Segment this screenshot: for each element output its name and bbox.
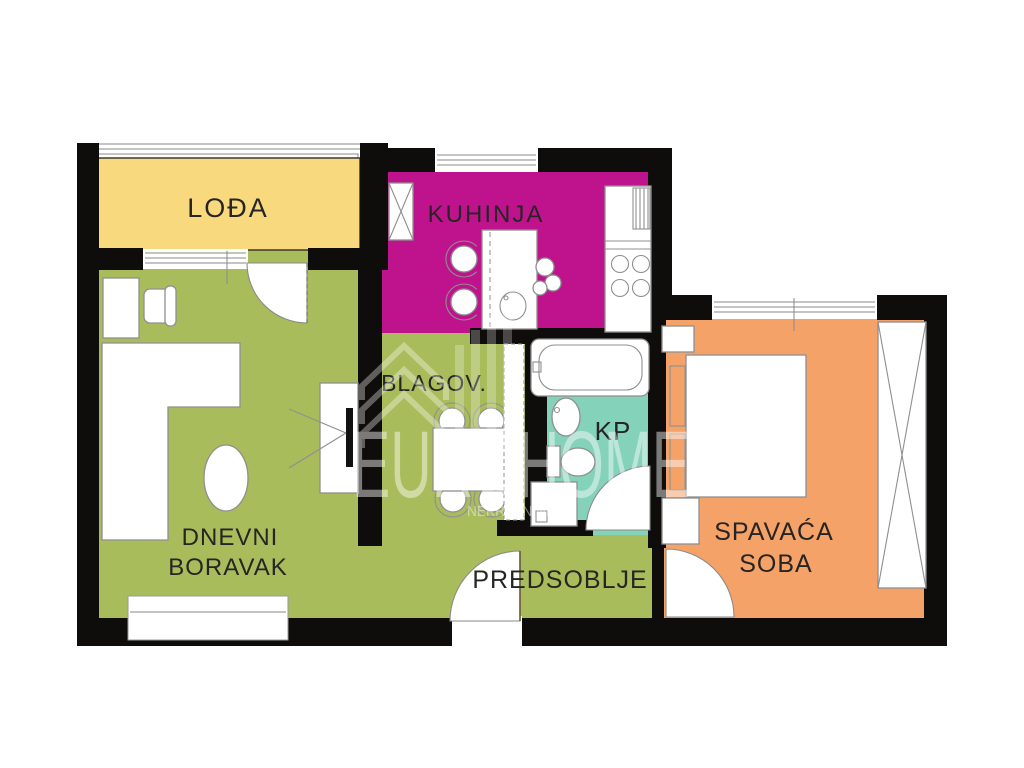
bedroom-door-leaf — [652, 548, 664, 618]
hallway-label: PREDSOBLJE — [472, 566, 647, 594]
living-label-line1: DNEVNI — [182, 524, 279, 551]
nightstand — [662, 326, 694, 352]
wall-loggia-band-left — [77, 248, 143, 270]
watermark-subtitle: NEKRETNINE — [467, 503, 555, 520]
wardrobe — [878, 322, 926, 588]
kitchen-window — [435, 149, 538, 172]
wall-kitchen-top-right — [538, 148, 650, 172]
bathtub — [531, 339, 649, 396]
loggia-label: LOĐA — [187, 193, 269, 223]
tall-cabinet — [389, 183, 413, 240]
coffee-table — [204, 445, 248, 511]
wall-left — [77, 143, 99, 646]
bed — [670, 355, 806, 497]
bedroom-label-line2: SOBA — [739, 550, 812, 578]
wall-right — [924, 295, 947, 646]
bedroom-label-line1: SPAVAĆA — [714, 517, 834, 546]
living-room-window — [128, 596, 288, 640]
kitchen-label: KUHINJA — [428, 201, 545, 228]
desk — [103, 278, 139, 338]
wall-bedroom-top-right — [877, 295, 947, 320]
living-label-line2: BORAVAK — [168, 554, 287, 581]
kitchen-counter — [605, 186, 651, 332]
armchair — [144, 286, 176, 326]
floor-plan-image: LOĐA KUHINJA BLAGOV. KP SPAVAĆA SOBA DNE… — [0, 0, 1024, 768]
floor-plan: LOĐA KUHINJA BLAGOV. KP SPAVAĆA SOBA DNE… — [0, 0, 1024, 768]
